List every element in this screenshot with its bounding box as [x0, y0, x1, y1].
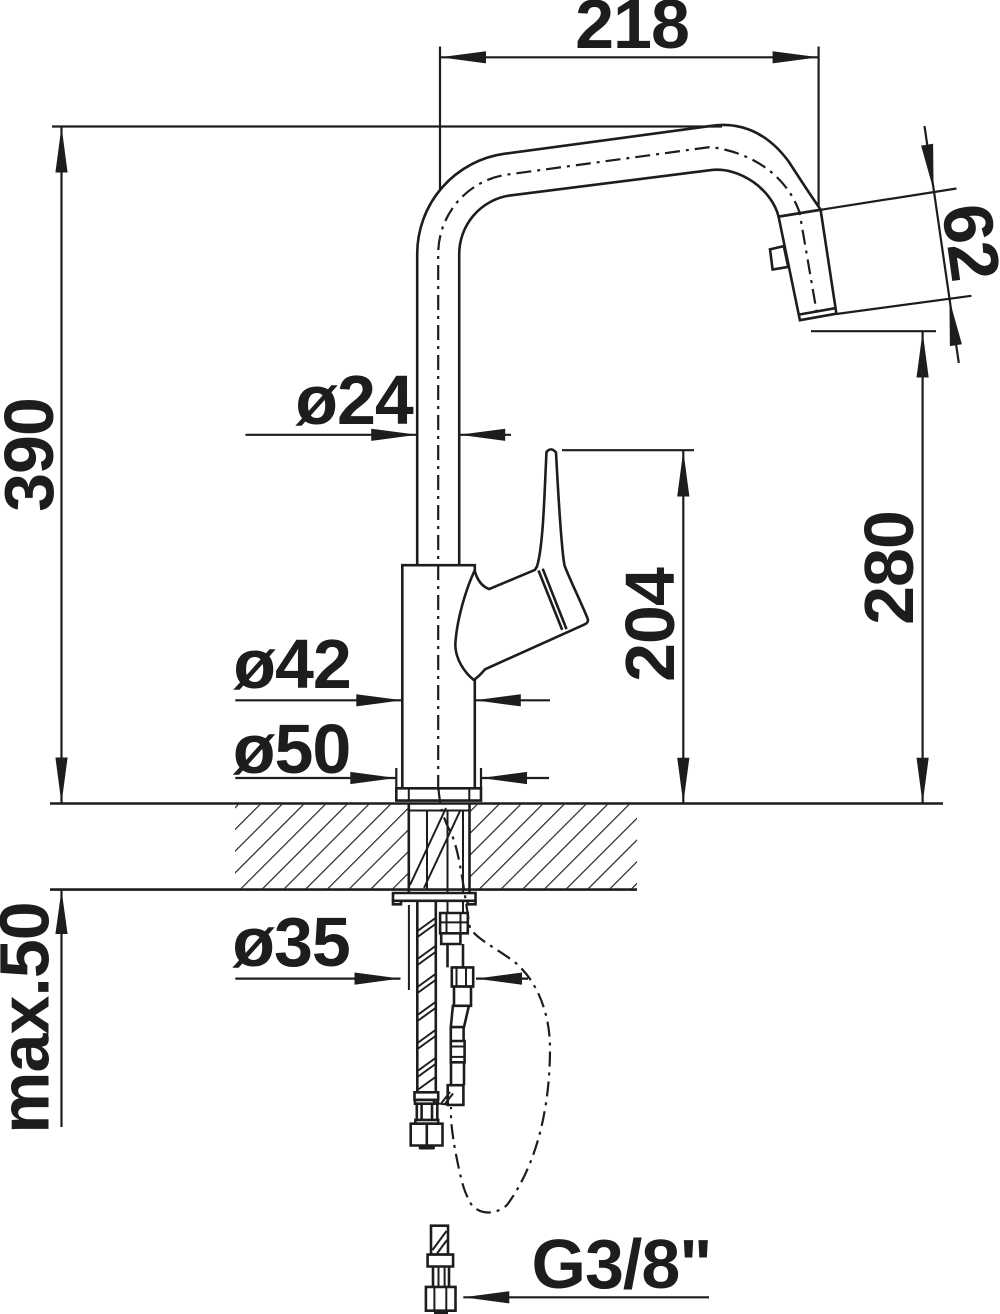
- svg-text:G3/8": G3/8": [532, 1225, 712, 1303]
- svg-text:204: 204: [611, 567, 689, 682]
- svg-text:ø35: ø35: [232, 903, 350, 981]
- svg-text:218: 218: [575, 0, 689, 63]
- svg-text:390: 390: [0, 398, 68, 512]
- svg-text:ø24: ø24: [295, 361, 414, 439]
- svg-text:280: 280: [850, 511, 928, 625]
- svg-text:ø42: ø42: [233, 625, 351, 703]
- svg-text:ø50: ø50: [233, 710, 351, 788]
- svg-text:max.50: max.50: [0, 902, 64, 1133]
